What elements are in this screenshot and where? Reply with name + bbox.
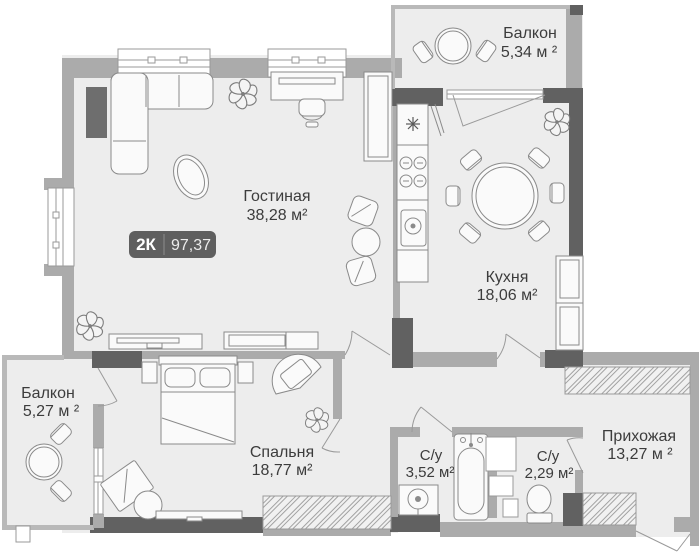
nightstand xyxy=(142,362,157,383)
tv-console xyxy=(109,334,202,349)
window-left xyxy=(48,188,74,266)
label-hallway: Прихожая 13,27 м ² xyxy=(602,428,676,463)
nightstand xyxy=(238,362,253,383)
room-area: 18,06 м² xyxy=(477,287,538,304)
room-name: Балкон xyxy=(503,25,557,42)
room-area: 2,29 м² xyxy=(525,465,574,482)
room-name: С/у xyxy=(420,447,443,464)
wardrobe-hall-top xyxy=(565,367,690,394)
room-area: 18,77 м² xyxy=(252,462,313,479)
sideboard xyxy=(224,332,318,349)
window-bedroom-balcony xyxy=(94,448,103,514)
room-name: Кухня xyxy=(486,269,529,286)
badge-value: 97,37 xyxy=(171,237,211,254)
toilet xyxy=(527,485,552,523)
room-area: 3,52 м² xyxy=(406,464,455,481)
sink-icon xyxy=(406,117,420,131)
room-area: 5,27 м ² xyxy=(23,403,80,420)
low-shelf xyxy=(156,511,242,521)
fridge-cabinet xyxy=(556,256,583,350)
badge-type: 2К xyxy=(136,235,156,254)
bathtub xyxy=(454,433,488,520)
label-bedroom: Спальня 18,77 м² xyxy=(250,444,314,479)
washbasin xyxy=(399,485,438,515)
apartment-badge: 2К 97,37 xyxy=(129,231,216,258)
room-name: С/у xyxy=(537,448,560,465)
floor-plan: Гостиная 38,28 м² Балкон 5,34 м ² Кухня … xyxy=(0,0,699,553)
floor-plan-canvas: Гостиная 38,28 м² Балкон 5,34 м ² Кухня … xyxy=(0,0,699,553)
room-name: Прихожая xyxy=(602,428,676,445)
room-area: 5,34 м ² xyxy=(501,44,558,61)
tv-unit xyxy=(86,87,107,138)
room-name: Гостиная xyxy=(243,188,310,205)
label-balcony-left: Балкон 5,27 м ² xyxy=(21,385,80,420)
balcony-drain xyxy=(16,526,30,542)
wardrobe-bedroom xyxy=(263,496,391,529)
tall-cabinet xyxy=(364,72,392,161)
double-bed xyxy=(159,356,237,444)
room-area: 13,27 м ² xyxy=(607,446,673,463)
room-area: 38,28 м² xyxy=(247,207,308,224)
room-name: Спальня xyxy=(250,444,314,461)
wardrobe-hall-bottom xyxy=(583,493,636,525)
room-name: Балкон xyxy=(21,385,75,402)
